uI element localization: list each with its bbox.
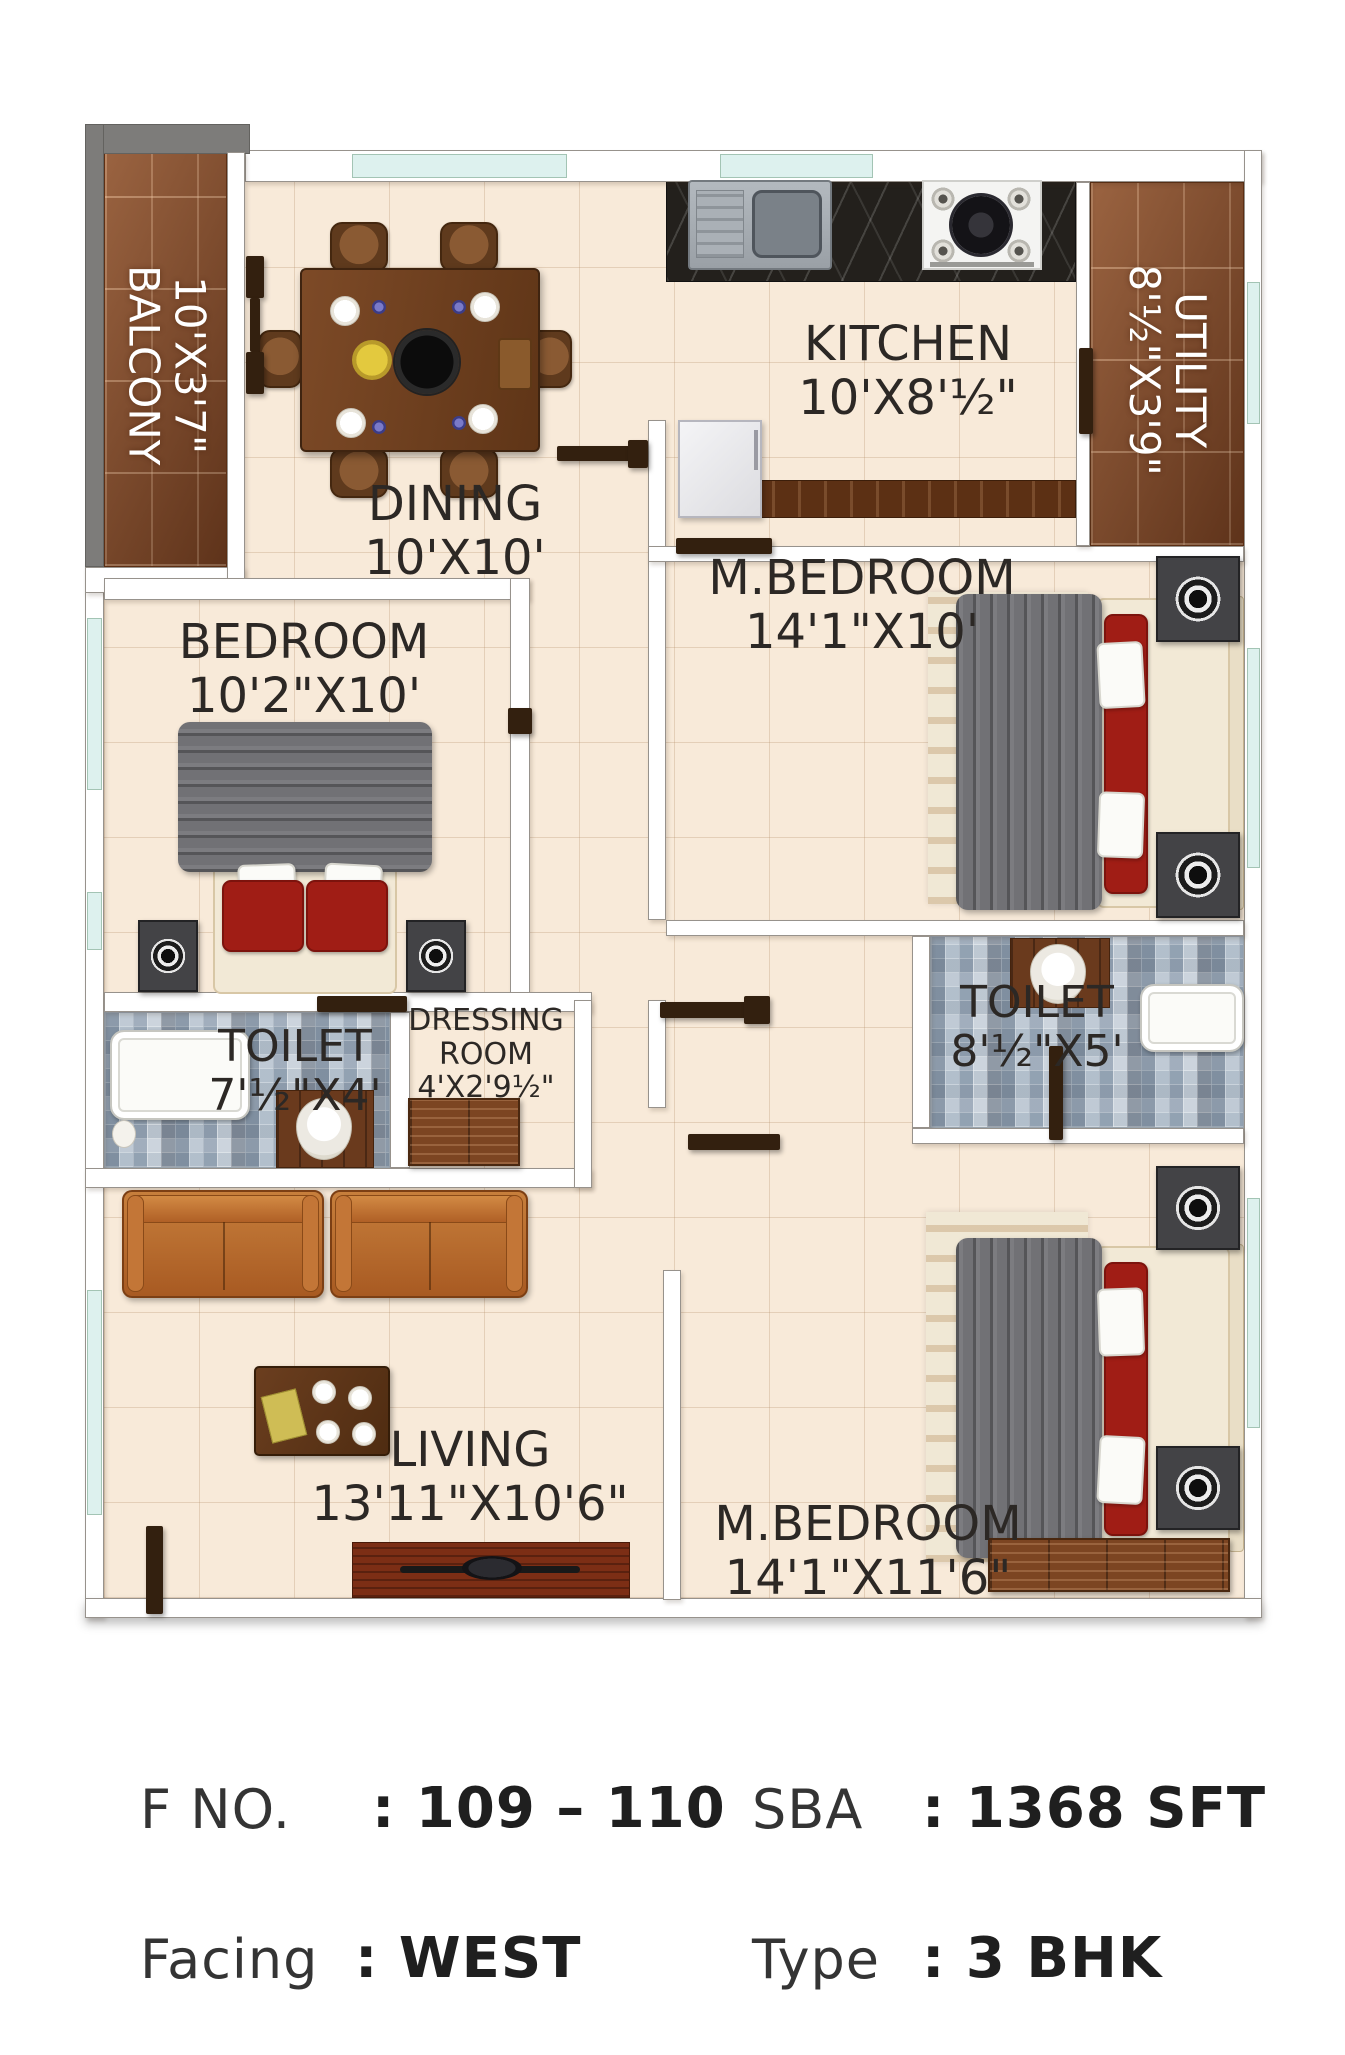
room-name: TOILET xyxy=(208,1022,381,1071)
type-label: Type xyxy=(752,1928,880,1991)
wardrobe xyxy=(988,1538,1230,1592)
floorplan: BALCONY 10'X3'7" UTILITY 8'½"X3'9" DININ… xyxy=(0,0,1345,2055)
stove-burner xyxy=(1006,186,1032,212)
room-dims: 10'X10' xyxy=(364,532,545,586)
kitchen-wood-ledge xyxy=(745,480,1076,518)
floorplan-page: BALCONY 10'X3'7" UTILITY 8'½"X3'9" DININ… xyxy=(0,0,1345,2055)
window-right-mbedroom-bottom xyxy=(1247,1198,1260,1428)
room-label-bedroom: BEDROOM 10'2"X10' xyxy=(179,616,430,724)
sofa-arm xyxy=(127,1195,144,1292)
nightstand-speaker xyxy=(138,920,198,992)
wall-corridor-upper xyxy=(648,420,666,920)
room-label-toilet-right: TOILET 8'½"X5' xyxy=(950,978,1123,1077)
dining-chair xyxy=(330,222,388,272)
wall-toilet-living xyxy=(85,1168,592,1188)
room-name: TOILET xyxy=(950,978,1123,1027)
balcony-door-jamb xyxy=(246,256,264,298)
serving-board xyxy=(498,338,532,390)
sba-value: : 1368 SFT xyxy=(922,1776,1266,1841)
room-dims: 7'½"X4' xyxy=(208,1071,381,1120)
dining-platter xyxy=(395,330,459,394)
cup xyxy=(348,1386,372,1410)
stove-burner xyxy=(930,186,956,212)
room-dims: 13'11"X10'6" xyxy=(311,1478,628,1532)
room-name: BALCONY xyxy=(120,265,166,465)
cooking-pan xyxy=(952,196,1010,254)
sofa-arm xyxy=(302,1195,319,1292)
nightstand-speaker xyxy=(1156,1446,1240,1530)
plate xyxy=(336,408,366,438)
room-label-dressing: DRESSING ROOM 4'X2'9½" xyxy=(396,1004,576,1105)
sofa-seam xyxy=(223,1222,225,1290)
room-name: M.BEDROOM xyxy=(708,552,1015,606)
nightstand-speaker xyxy=(1156,556,1240,642)
room-label-balcony: BALCONY 10'X3'7" xyxy=(104,180,228,550)
stove-burner xyxy=(930,238,956,264)
room-label-utility: UTILITY 8'½"X3'9" xyxy=(1090,190,1244,550)
plate xyxy=(468,404,498,434)
bathtub xyxy=(1140,984,1244,1052)
bowl xyxy=(452,416,466,430)
window-left-bedroom xyxy=(87,618,102,790)
sofa-back xyxy=(336,1195,522,1223)
window-top-kitchen xyxy=(720,154,873,178)
room-label-mbedroom-bottom: M.BEDROOM 14'1"X11'6" xyxy=(714,1498,1021,1606)
nightstand-speaker xyxy=(1156,1166,1240,1250)
dressing-wardrobe xyxy=(408,1098,520,1166)
room-label-toilet-left: TOILET 7'½"X4' xyxy=(208,1022,381,1121)
red-pillow xyxy=(306,880,388,952)
red-pillow xyxy=(222,880,304,952)
room-dims: 10'X3'7" xyxy=(166,276,212,454)
white-pillow xyxy=(1097,1287,1145,1357)
cup xyxy=(312,1380,336,1404)
nightstand-speaker xyxy=(406,920,466,992)
flat-number-value: : 109 – 110 xyxy=(372,1776,726,1841)
white-pillow xyxy=(1096,1435,1145,1505)
toilet-paper-holder xyxy=(112,1120,136,1148)
tv-base xyxy=(462,1556,522,1580)
facing-value: : WEST xyxy=(355,1926,581,1991)
balcony-wall-left xyxy=(85,124,104,567)
window-left-toilet xyxy=(87,892,102,950)
room-name: DRESSING ROOM xyxy=(396,1004,576,1071)
stove-burner xyxy=(1006,238,1032,264)
bed-blanket xyxy=(178,722,432,872)
dining-chair xyxy=(258,330,302,388)
corridor-door-jamb xyxy=(744,996,770,1024)
plate xyxy=(330,296,360,326)
dining-chair xyxy=(440,222,498,272)
bowl xyxy=(452,300,466,314)
sink-drainboard xyxy=(696,190,744,258)
kitchen-sink-bowl xyxy=(752,190,822,258)
flat-number-label: F NO. xyxy=(140,1778,291,1841)
balcony-door-leaf xyxy=(250,298,260,352)
window-top-dining xyxy=(352,154,567,178)
balcony-wall-right xyxy=(227,152,245,593)
room-name: KITCHEN xyxy=(798,318,1018,372)
sba-label: SBA xyxy=(752,1778,863,1841)
sofa-arm xyxy=(506,1195,523,1292)
room-dims: 4'X2'9½" xyxy=(396,1071,576,1105)
room-name: UTILITY xyxy=(1167,292,1213,448)
balcony-wall-top xyxy=(85,124,250,154)
bedroom-door-jamb xyxy=(508,708,532,734)
room-dims: 8'½"X5' xyxy=(950,1027,1123,1076)
room-dims: 14'1"X10' xyxy=(708,606,1015,660)
stove-knobs xyxy=(930,262,1034,267)
entrance-door xyxy=(146,1526,163,1614)
room-dims: 14'1"X11'6" xyxy=(714,1552,1021,1606)
nightstand-speaker xyxy=(1156,832,1240,918)
room-dims: 10'2"X10' xyxy=(179,670,430,724)
room-label-dining: DINING 10'X10' xyxy=(364,478,545,586)
wall-mbedroom-passage xyxy=(666,920,1244,936)
wall-living-mbedroom xyxy=(663,1270,681,1600)
room-label-living: LIVING 13'11"X10'6" xyxy=(311,1424,628,1532)
white-pillow xyxy=(1096,641,1145,709)
food-bowl xyxy=(352,340,392,380)
white-pillow xyxy=(1097,791,1145,859)
room-dims: 10'X8'½" xyxy=(798,372,1018,426)
wall-dressing-right xyxy=(574,1000,592,1188)
plate xyxy=(470,292,500,322)
room-name: LIVING xyxy=(311,1424,628,1478)
window-right-utility xyxy=(1247,282,1260,424)
room-name: M.BEDROOM xyxy=(714,1498,1021,1552)
room-label-kitchen: KITCHEN 10'X8'½" xyxy=(798,318,1018,426)
wall-bottom xyxy=(85,1598,1262,1618)
room-name: DINING xyxy=(364,478,545,532)
wall-toilet-right-bottom xyxy=(912,1128,1244,1144)
type-value: : 3 BHK xyxy=(922,1926,1162,1991)
window-right-mbedroom-top xyxy=(1247,648,1260,868)
balcony-door-jamb xyxy=(246,352,264,394)
room-name: BEDROOM xyxy=(179,616,430,670)
bedroom-door-jamb xyxy=(628,440,648,468)
sofa xyxy=(330,1190,528,1298)
facing-label: Facing xyxy=(140,1928,318,1991)
bowl xyxy=(372,300,386,314)
window-left-living xyxy=(87,1290,102,1515)
bowl xyxy=(372,420,386,434)
fridge-handle xyxy=(754,430,758,470)
wall-bedroom-right xyxy=(510,578,530,1012)
toilet-left-door xyxy=(317,996,407,1012)
room-label-mbedroom-top: M.BEDROOM 14'1"X10' xyxy=(708,552,1015,660)
room-dims: 8'½"X3'9" xyxy=(1121,264,1167,475)
sofa-seam xyxy=(429,1222,431,1290)
sofa-back xyxy=(128,1195,318,1223)
fridge xyxy=(678,420,762,518)
mbedroom-bottom-door xyxy=(688,1134,780,1150)
wall-toilet-right-left xyxy=(912,936,930,1128)
sofa-arm xyxy=(335,1195,352,1292)
sofa xyxy=(122,1190,324,1298)
